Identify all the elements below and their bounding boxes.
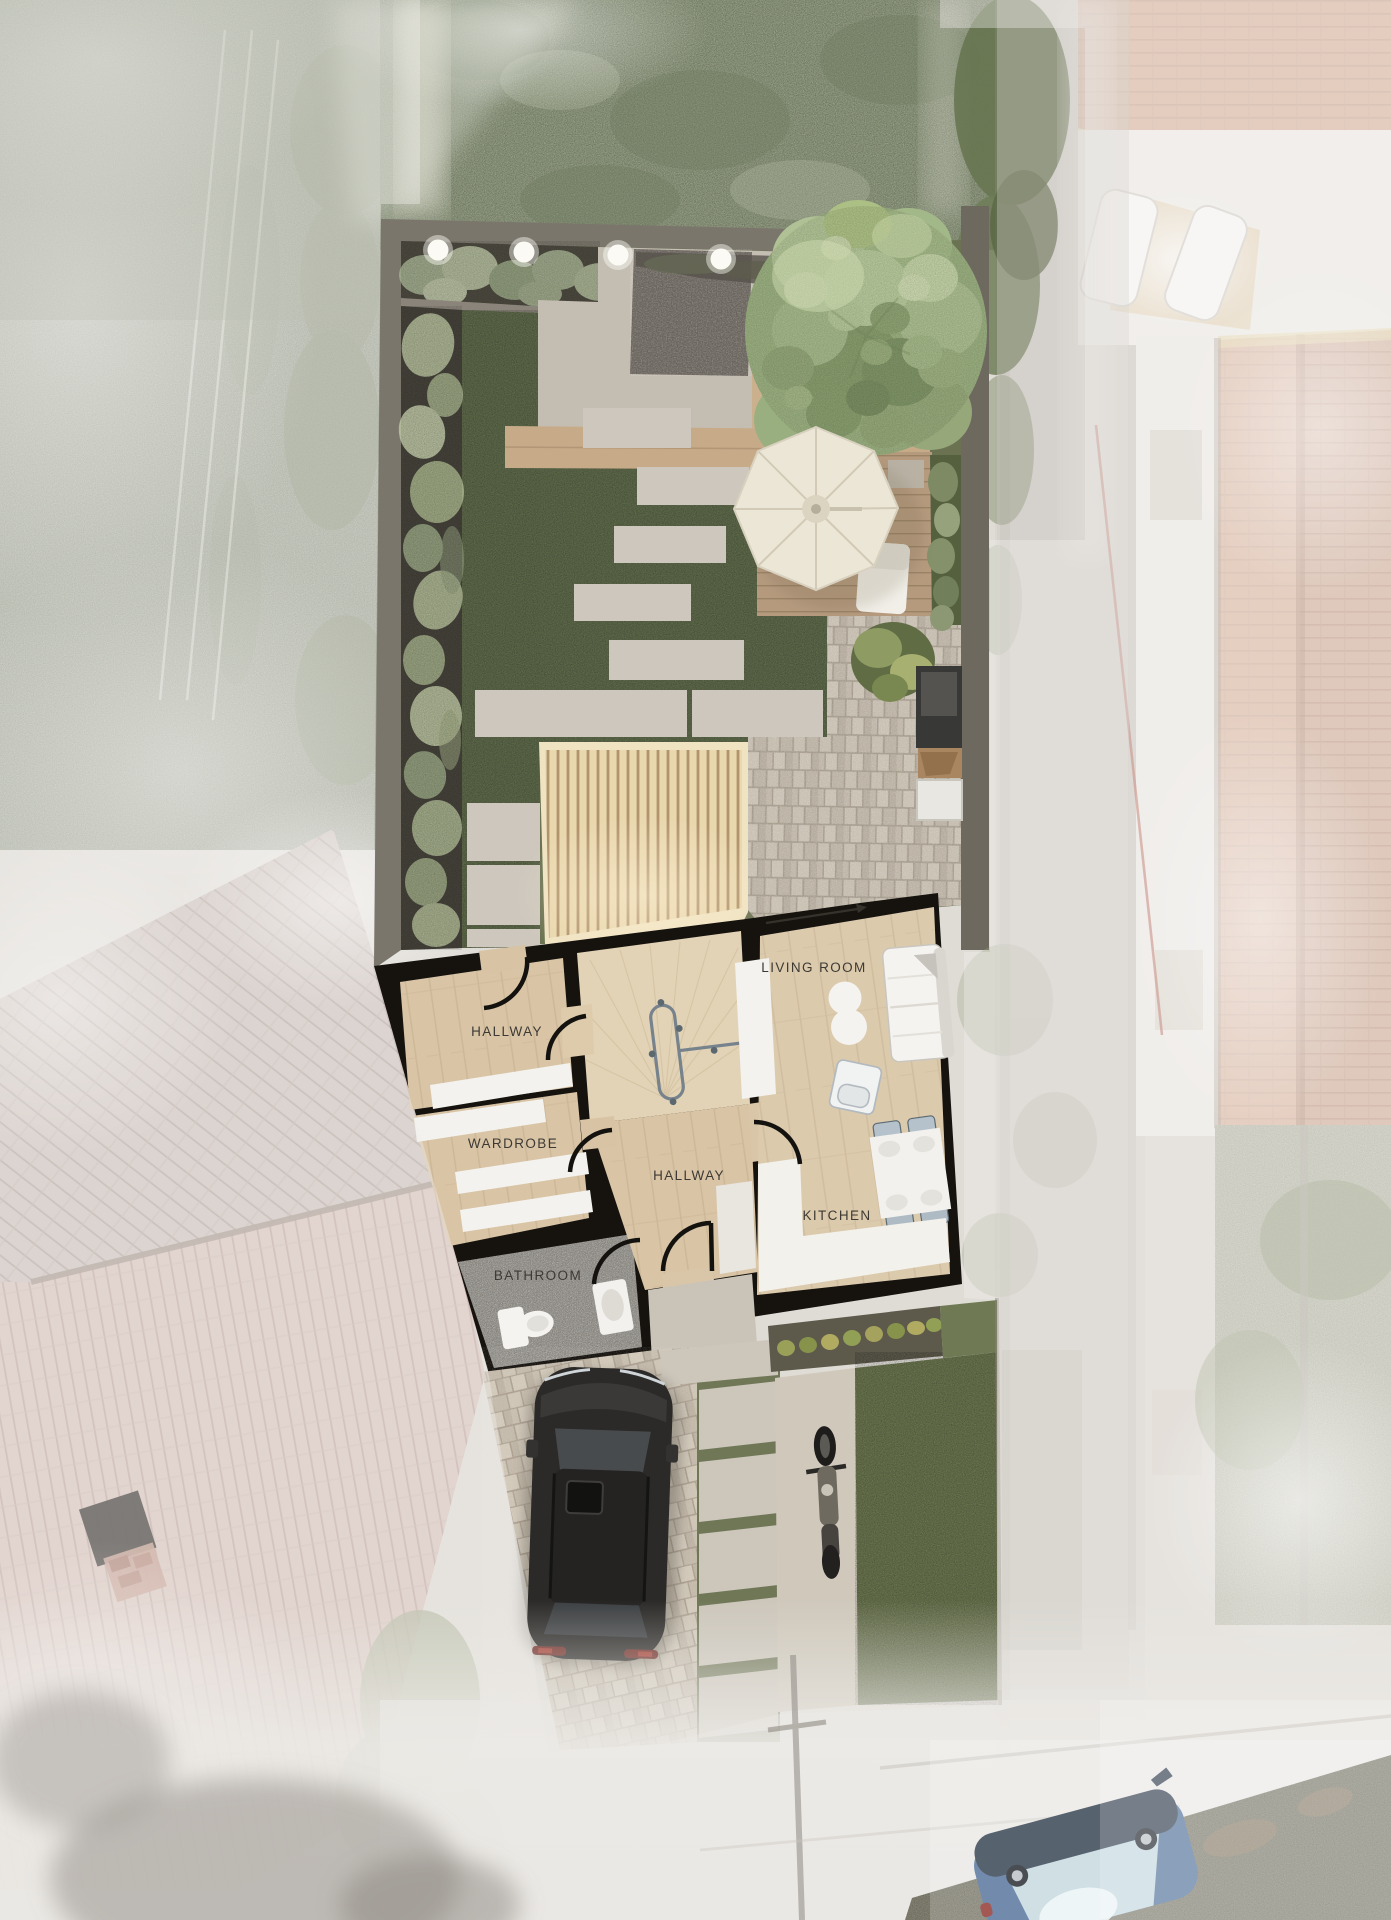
- svg-text:LIVING ROOM: LIVING ROOM: [761, 960, 866, 975]
- svg-text:KITCHEN: KITCHEN: [802, 1208, 871, 1223]
- svg-text:BATHROOM: BATHROOM: [494, 1268, 582, 1283]
- svg-text:HALLWAY: HALLWAY: [471, 1024, 543, 1039]
- svg-text:WARDROBE: WARDROBE: [468, 1136, 558, 1151]
- svg-text:HALLWAY: HALLWAY: [653, 1168, 725, 1183]
